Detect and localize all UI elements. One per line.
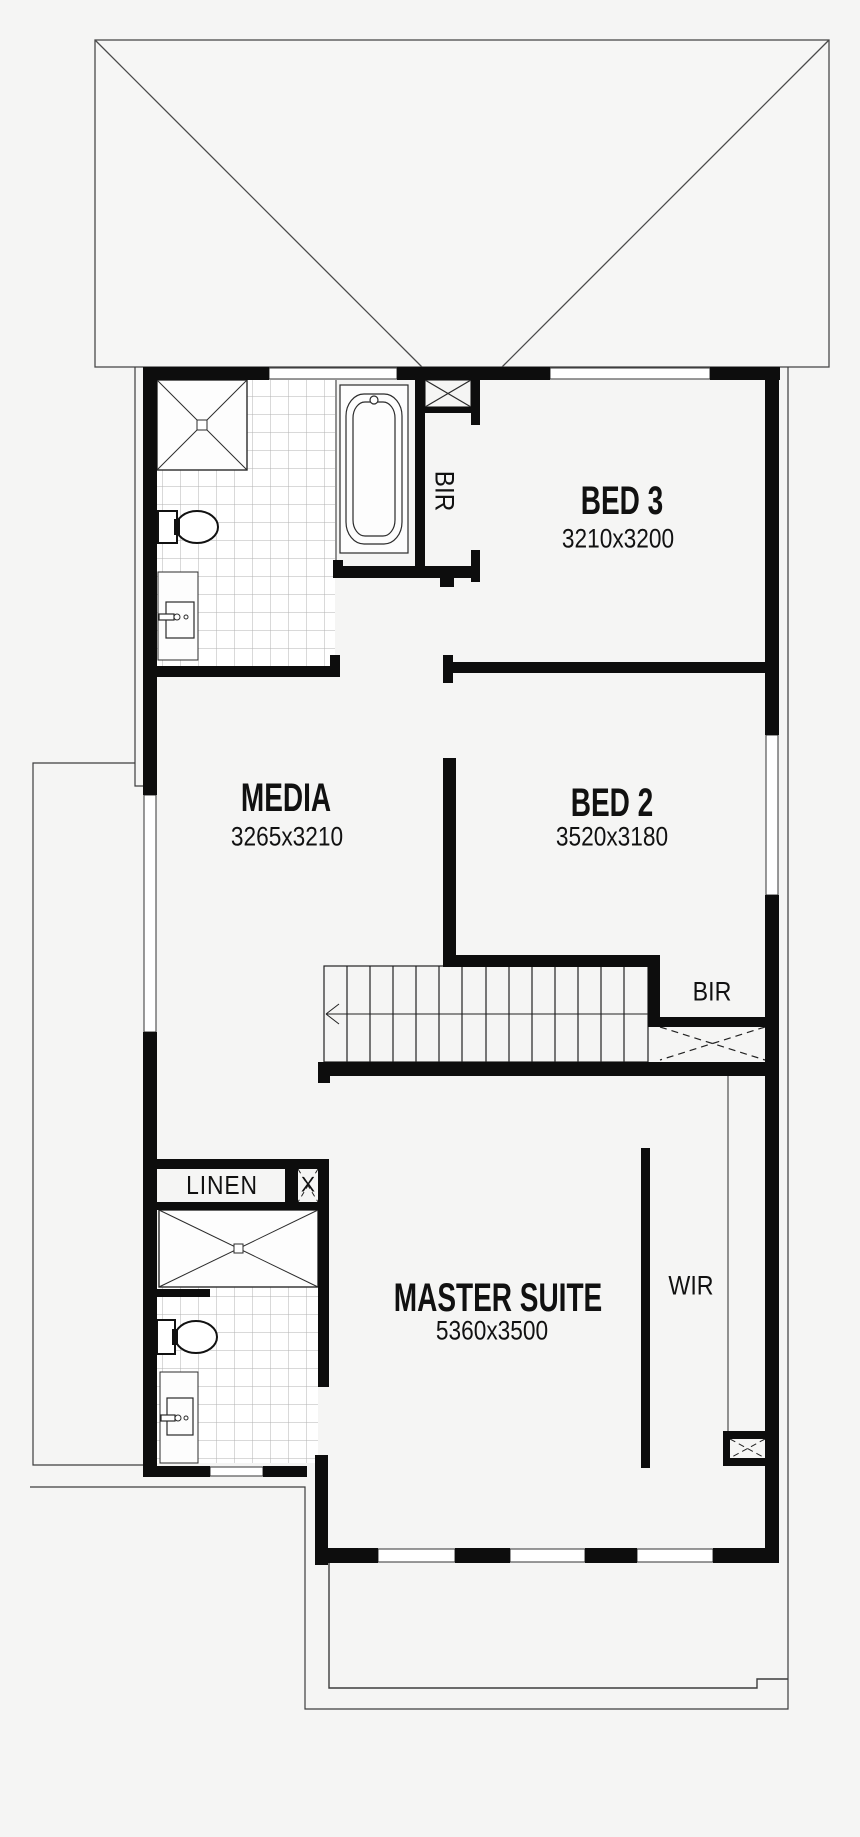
wall-segment (443, 955, 660, 967)
wall-segment (765, 895, 779, 1563)
closet-label-bir-landing: BIR (693, 979, 732, 1006)
wall-segment (723, 1431, 765, 1439)
wall-segment (157, 1202, 329, 1210)
boundary-line (135, 367, 143, 786)
wall-segment (333, 566, 480, 578)
shower (157, 380, 247, 470)
wall-segment (263, 1466, 307, 1477)
room-label-bed2: BED 2 (571, 783, 653, 823)
window (269, 368, 397, 379)
window (637, 1549, 713, 1562)
shower-drain (197, 420, 207, 430)
wall-segment (315, 1455, 328, 1565)
room-dims-media: 3265x3210 (231, 824, 343, 851)
linen-box-marker: X (301, 1175, 315, 1196)
wall-segment (455, 1548, 510, 1563)
boundary-line (33, 763, 143, 1465)
wall-segment (723, 1458, 765, 1466)
wall-segment (330, 655, 340, 677)
wir-shelf-box (730, 1439, 765, 1458)
room-dims-bed3: 3210x3200 (562, 526, 674, 553)
wall-segment (318, 1159, 329, 1387)
wall-segment (143, 367, 157, 795)
room-dims-bed2: 3520x3180 (556, 824, 668, 851)
bathtub (336, 380, 408, 563)
wall-segment (320, 1062, 779, 1076)
shower-drain (234, 1244, 243, 1253)
stairs (324, 966, 648, 1062)
closet-label-linen: LINEN (186, 1172, 258, 1198)
vanity (158, 572, 198, 660)
wall-segment (143, 1466, 210, 1477)
wall-segment (443, 662, 765, 673)
wall-segment (648, 955, 660, 1027)
bir-landing-shelf-box (660, 1027, 765, 1060)
room-label-media: MEDIA (241, 778, 331, 818)
wall-segment (648, 1017, 765, 1027)
window (766, 735, 778, 895)
roof-rect (95, 40, 829, 367)
wall-segment (143, 666, 340, 677)
toilet (157, 1320, 217, 1354)
wall-segment (765, 367, 779, 735)
room-label-master: MASTER SUITE (394, 1278, 602, 1318)
roof-outline (95, 40, 829, 367)
wall-segment (641, 1148, 650, 1468)
wall-segment (157, 1159, 329, 1169)
bathtub-faucet (370, 396, 378, 404)
wall-segment (471, 378, 480, 425)
wall-segment (713, 1548, 779, 1563)
wall-segment (443, 758, 456, 967)
window (550, 368, 710, 379)
bir-bathroom-shelf-box (425, 380, 471, 407)
wall-segment (585, 1548, 637, 1563)
wall-segment (285, 1169, 298, 1202)
closet-label-bir-bathroom: BIR (431, 471, 458, 512)
wall-segment (143, 1032, 157, 1477)
window (378, 1549, 455, 1562)
lower-floor-line (329, 1563, 788, 1688)
wall-segment (318, 1062, 330, 1083)
window (144, 795, 156, 1032)
toilet (158, 511, 218, 543)
vanity (160, 1372, 198, 1463)
wall-segment (415, 380, 425, 570)
window (210, 1467, 263, 1476)
wall-segment (440, 578, 454, 587)
room-label-bed3: BED 3 (581, 481, 663, 521)
floor-plan: BED 3 3210x3200 BED 2 3520x3180 MEDIA 32… (0, 0, 860, 1837)
wall-segment (333, 560, 343, 578)
room-dims-master: 5360x3500 (436, 1318, 548, 1345)
floor-plan-drawing (0, 0, 860, 1837)
window (510, 1549, 585, 1562)
ground-floor-outline (329, 1563, 788, 1688)
wall-segment (157, 1289, 210, 1297)
wall-segment (425, 407, 472, 413)
wall-segment (143, 367, 269, 380)
shower (159, 1210, 318, 1287)
wall-segment (443, 655, 453, 683)
closet-label-wir: WIR (668, 1273, 713, 1300)
